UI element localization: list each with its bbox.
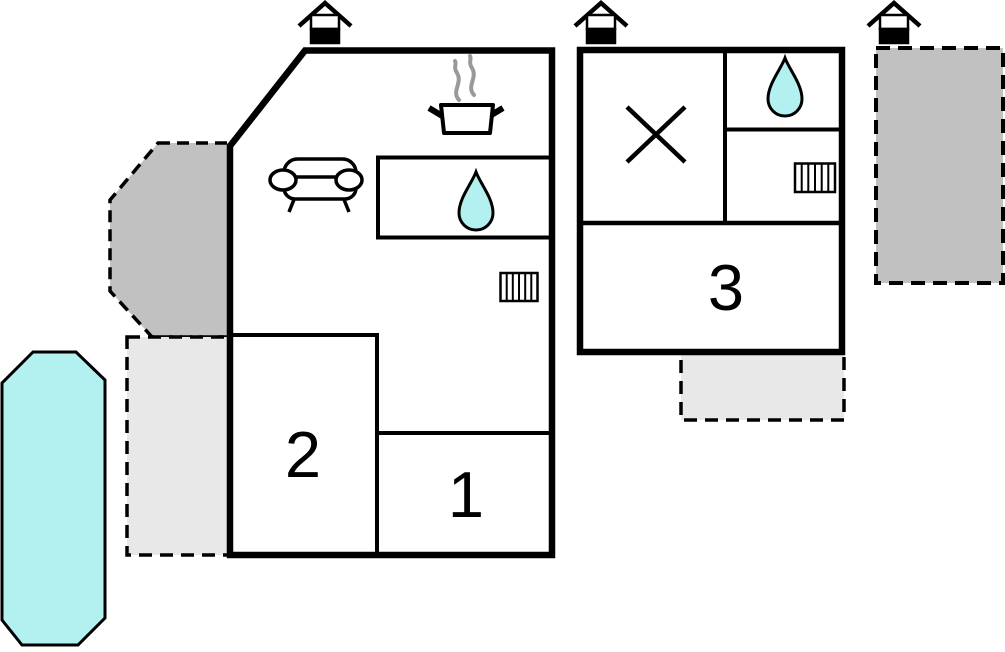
building-left-outline bbox=[230, 51, 552, 556]
room1-label: 1 bbox=[448, 458, 484, 531]
terrace-dark-right bbox=[876, 48, 1003, 283]
entrance-icon bbox=[868, 3, 920, 43]
radiator-icon bbox=[501, 273, 538, 301]
room3-label: 3 bbox=[708, 251, 744, 324]
room2-label: 2 bbox=[285, 418, 321, 491]
terrace-light-left bbox=[127, 337, 230, 555]
floor-plan: 2 1 3 bbox=[0, 0, 1005, 652]
building-left: 2 1 bbox=[230, 51, 552, 556]
terrace-light-right bbox=[681, 352, 844, 420]
entrance-icon bbox=[299, 3, 351, 43]
pool-shape bbox=[2, 352, 105, 645]
entrance-icon bbox=[575, 3, 627, 43]
building-right: 3 bbox=[580, 50, 842, 352]
radiator-icon bbox=[795, 164, 835, 193]
floor-plan-canvas: 2 1 3 bbox=[0, 0, 1005, 652]
terrace-dark-left bbox=[110, 143, 230, 337]
